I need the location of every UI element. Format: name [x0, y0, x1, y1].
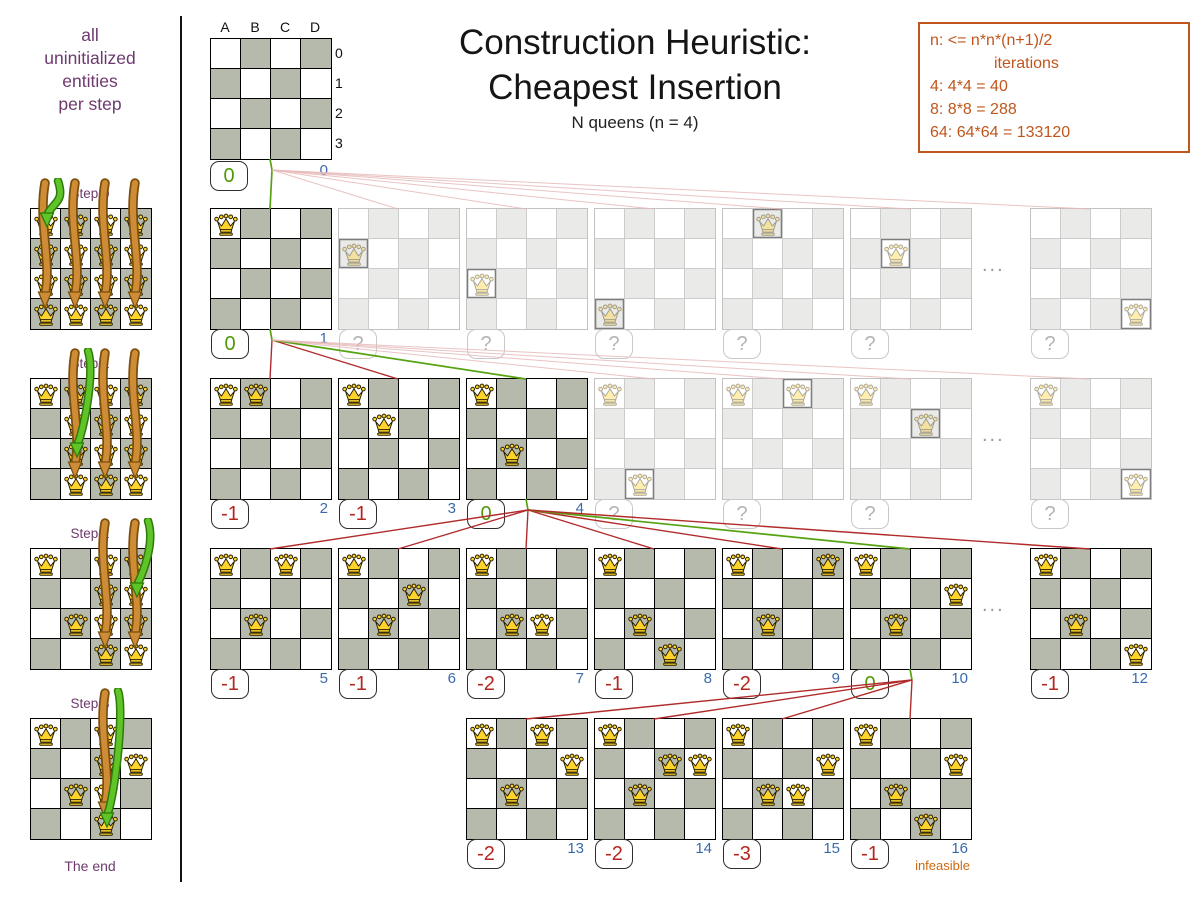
- the-end-label: The end: [8, 858, 172, 874]
- board-cell: [557, 549, 587, 579]
- board-cell: [1061, 639, 1091, 669]
- board-cell: [339, 239, 369, 269]
- board-cell: [655, 409, 685, 439]
- page-title: Construction Heuristic: Cheapest Inserti…: [392, 20, 878, 110]
- board-cell: [813, 439, 843, 469]
- queen-icon: [1033, 381, 1059, 407]
- board-cell: [723, 749, 753, 779]
- tree-board: [722, 208, 844, 330]
- board-cell: [467, 409, 497, 439]
- queen-icon: [123, 411, 149, 437]
- board-cell: [241, 299, 271, 329]
- board-cell: [31, 439, 61, 469]
- board-cell: [241, 379, 271, 409]
- board-cell: [527, 439, 557, 469]
- tree-board: [338, 548, 460, 670]
- board-cell: [369, 469, 399, 499]
- queen-icon: [93, 241, 119, 267]
- queen-icon: [725, 721, 751, 747]
- queen-icon: [401, 581, 427, 607]
- tree-board: [1030, 548, 1152, 670]
- board-cell: [941, 549, 971, 579]
- queen-icon: [943, 751, 969, 777]
- queen-icon: [63, 381, 89, 407]
- board-cell: [1031, 439, 1061, 469]
- board-cell: [685, 469, 715, 499]
- board-cell: [625, 639, 655, 669]
- board-cell: [753, 609, 783, 639]
- board-cell: [1031, 379, 1061, 409]
- queen-icon: [33, 241, 59, 267]
- board-cell: [271, 409, 301, 439]
- tree-board: [594, 718, 716, 840]
- board-cell: [911, 719, 941, 749]
- board-cell: [753, 579, 783, 609]
- board-cell: [271, 379, 301, 409]
- board-cell: [467, 469, 497, 499]
- iteration-number: 16: [850, 840, 968, 857]
- board-cell: [1061, 439, 1091, 469]
- queen-icon: [1123, 471, 1149, 497]
- step-label: Step 2: [30, 526, 150, 541]
- board-cell: [625, 239, 655, 269]
- queen-icon: [815, 751, 841, 777]
- board-cell: [881, 209, 911, 239]
- board-cell: [557, 719, 587, 749]
- board-cell: [1121, 209, 1151, 239]
- intro-line-4: per step: [6, 93, 174, 116]
- board-cell: [497, 609, 527, 639]
- board-cell: [527, 209, 557, 239]
- board-cell: [881, 269, 911, 299]
- board-cell: [1091, 379, 1121, 409]
- board-cell: [941, 469, 971, 499]
- queen-icon: [597, 551, 623, 577]
- score-badge: ?: [467, 329, 505, 359]
- board-cell: [399, 409, 429, 439]
- step-board: [30, 208, 152, 330]
- board-cell: [881, 239, 911, 269]
- board-cell: [467, 579, 497, 609]
- board-cell: [941, 579, 971, 609]
- board-cell: [941, 749, 971, 779]
- board-cell: [91, 609, 121, 639]
- board-cell: [31, 299, 61, 329]
- board-cell: [241, 209, 271, 239]
- board-cell: [911, 779, 941, 809]
- queen-icon: [93, 581, 119, 607]
- board-cell: [1121, 549, 1151, 579]
- board-cell: [851, 609, 881, 639]
- page-title-line1: Construction Heuristic:: [392, 20, 878, 65]
- board-cell: [339, 549, 369, 579]
- score-badge: ?: [851, 499, 889, 529]
- queen-icon: [657, 641, 683, 667]
- score-badge: ?: [723, 499, 761, 529]
- board-cell: [241, 129, 271, 159]
- board-cell: [91, 639, 121, 669]
- tree-board: [850, 208, 972, 330]
- board-cell: [813, 579, 843, 609]
- board-cell: [211, 379, 241, 409]
- queen-icon: [559, 751, 585, 777]
- board-cell: [1061, 609, 1091, 639]
- board-cell: [783, 209, 813, 239]
- board-cell: [851, 749, 881, 779]
- queen-icon: [341, 551, 367, 577]
- board-cell: [881, 749, 911, 779]
- board-cell: [941, 299, 971, 329]
- board-cell: [753, 239, 783, 269]
- board-cell: [467, 779, 497, 809]
- board-cell: [31, 609, 61, 639]
- column-letter: B: [240, 19, 270, 35]
- board-cell: [685, 549, 715, 579]
- board-cell: [339, 639, 369, 669]
- row-number: 0: [335, 45, 343, 61]
- queen-icon: [597, 301, 623, 327]
- board-cell: [1091, 579, 1121, 609]
- board-cell: [595, 719, 625, 749]
- intro-line-3: entities: [6, 70, 174, 93]
- board-cell: [429, 379, 459, 409]
- infeasible-label: infeasible: [842, 858, 970, 873]
- board-cell: [625, 209, 655, 239]
- board-cell: [813, 809, 843, 839]
- board-cell: [911, 439, 941, 469]
- board-cell: [911, 749, 941, 779]
- board-cell: [31, 209, 61, 239]
- board-cell: [685, 239, 715, 269]
- board-cell: [467, 269, 497, 299]
- board-cell: [369, 439, 399, 469]
- board-cell: [301, 609, 331, 639]
- board-cell: [301, 39, 331, 69]
- queen-icon: [123, 211, 149, 237]
- board-cell: [723, 439, 753, 469]
- queen-icon: [1063, 611, 1089, 637]
- queen-icon: [123, 381, 149, 407]
- board-cell: [557, 379, 587, 409]
- board-cell: [121, 209, 151, 239]
- board-cell: [301, 469, 331, 499]
- queen-icon: [123, 241, 149, 267]
- board-cell: [625, 579, 655, 609]
- board-cell: [121, 719, 151, 749]
- board-cell: [723, 579, 753, 609]
- board-cell: [813, 239, 843, 269]
- board-cell: [1121, 409, 1151, 439]
- board-cell: [911, 209, 941, 239]
- board-cell: [31, 379, 61, 409]
- board-cell: [467, 719, 497, 749]
- board-cell: [625, 269, 655, 299]
- board-cell: [941, 779, 971, 809]
- queen-icon: [341, 241, 367, 267]
- board-cell: [685, 719, 715, 749]
- ellipsis-label: ...: [982, 424, 1005, 447]
- board-cell: [881, 439, 911, 469]
- board-cell: [1031, 269, 1061, 299]
- board-cell: [595, 209, 625, 239]
- board-cell: [753, 809, 783, 839]
- queen-icon: [123, 581, 149, 607]
- board-cell: [61, 609, 91, 639]
- queen-icon: [943, 581, 969, 607]
- iteration-number: 1: [210, 330, 328, 347]
- board-cell: [783, 639, 813, 669]
- board-cell: [685, 749, 715, 779]
- tree-board: [466, 378, 588, 500]
- board-cell: [655, 269, 685, 299]
- board-cell: [241, 639, 271, 669]
- board-cell: [121, 239, 151, 269]
- queen-icon: [123, 471, 149, 497]
- board-cell: [851, 779, 881, 809]
- queen-icon: [93, 721, 119, 747]
- board-cell: [241, 69, 271, 99]
- board-cell: [211, 239, 241, 269]
- board-cell: [1061, 209, 1091, 239]
- board-cell: [467, 809, 497, 839]
- board-cell: [1091, 239, 1121, 269]
- board-cell: [723, 719, 753, 749]
- board-cell: [31, 409, 61, 439]
- board-cell: [91, 439, 121, 469]
- board-cell: [595, 239, 625, 269]
- board-cell: [369, 239, 399, 269]
- tree-board: [722, 378, 844, 500]
- iteration-number: 3: [338, 500, 456, 517]
- board-cell: [685, 579, 715, 609]
- queen-icon: [597, 381, 623, 407]
- queen-icon: [243, 381, 269, 407]
- tree-board: [850, 718, 972, 840]
- board-cell: [685, 609, 715, 639]
- queen-icon: [913, 411, 939, 437]
- queen-icon: [93, 781, 119, 807]
- board-cell: [851, 579, 881, 609]
- board-cell: [61, 439, 91, 469]
- queen-icon: [93, 811, 119, 837]
- board-cell: [813, 549, 843, 579]
- board-cell: [497, 469, 527, 499]
- board-cell: [813, 469, 843, 499]
- board-cell: [369, 639, 399, 669]
- tree-board: [594, 378, 716, 500]
- board-cell: [753, 299, 783, 329]
- board-cell: [211, 549, 241, 579]
- board-cell: [91, 809, 121, 839]
- board-cell: [497, 749, 527, 779]
- board-cell: [467, 379, 497, 409]
- tree-board: [1030, 208, 1152, 330]
- board-cell: [881, 299, 911, 329]
- board-cell: [881, 719, 911, 749]
- tree-board: [722, 548, 844, 670]
- iteration-number: 8: [594, 670, 712, 687]
- board-cell: [497, 809, 527, 839]
- board-cell: [851, 439, 881, 469]
- board-cell: [1091, 639, 1121, 669]
- queen-icon: [883, 781, 909, 807]
- board-cell: [31, 749, 61, 779]
- queen-icon: [93, 551, 119, 577]
- board-cell: [301, 639, 331, 669]
- board-cell: [211, 209, 241, 239]
- board-cell: [941, 209, 971, 239]
- info-line-n64: 64: 64*64 = 133120: [930, 121, 1178, 144]
- board-cell: [595, 549, 625, 579]
- board-cell: [685, 379, 715, 409]
- queen-icon: [1123, 641, 1149, 667]
- board-cell: [1031, 469, 1061, 499]
- board-cell: [595, 579, 625, 609]
- board-cell: [61, 549, 91, 579]
- connector-line: [272, 170, 1090, 209]
- tree-board: [466, 208, 588, 330]
- board-cell: [429, 269, 459, 299]
- board-cell: [557, 439, 587, 469]
- board-cell: [31, 579, 61, 609]
- board-cell: [91, 209, 121, 239]
- board-cell: [61, 379, 91, 409]
- board-cell: [685, 639, 715, 669]
- queen-icon: [853, 551, 879, 577]
- board-cell: [1061, 549, 1091, 579]
- board-cell: [271, 439, 301, 469]
- board-cell: [851, 239, 881, 269]
- queen-icon: [63, 241, 89, 267]
- queen-icon: [33, 381, 59, 407]
- board-cell: [783, 409, 813, 439]
- board-cell: [467, 749, 497, 779]
- board-cell: [911, 469, 941, 499]
- board-cell: [399, 639, 429, 669]
- board-cell: [429, 439, 459, 469]
- board-cell: [211, 269, 241, 299]
- board-cell: [61, 779, 91, 809]
- queen-icon: [627, 781, 653, 807]
- queen-icon: [273, 551, 299, 577]
- queen-icon: [529, 611, 555, 637]
- board-cell: [1121, 299, 1151, 329]
- board-cell: [851, 299, 881, 329]
- board-cell: [813, 639, 843, 669]
- board-cell: [241, 99, 271, 129]
- board-cell: [557, 579, 587, 609]
- board-cell: [881, 579, 911, 609]
- queen-icon: [785, 381, 811, 407]
- board-cell: [851, 809, 881, 839]
- queen-icon: [213, 211, 239, 237]
- board-cell: [783, 239, 813, 269]
- queen-icon: [63, 781, 89, 807]
- board-cell: [497, 639, 527, 669]
- board-cell: [271, 99, 301, 129]
- board-cell: [625, 409, 655, 439]
- page-title-line2: Cheapest Insertion: [392, 65, 878, 110]
- queen-icon: [371, 411, 397, 437]
- board-cell: [1031, 609, 1061, 639]
- ellipsis-label: ...: [982, 254, 1005, 277]
- board-cell: [655, 579, 685, 609]
- board-cell: [301, 299, 331, 329]
- board-cell: [557, 749, 587, 779]
- board-cell: [557, 809, 587, 839]
- board-cell: [121, 299, 151, 329]
- board-cell: [497, 579, 527, 609]
- board-cell: [301, 409, 331, 439]
- board-cell: [1061, 409, 1091, 439]
- board-cell: [753, 269, 783, 299]
- board-cell: [655, 379, 685, 409]
- queen-icon: [687, 751, 713, 777]
- iteration-number: 9: [722, 670, 840, 687]
- board-cell: [911, 639, 941, 669]
- board-cell: [467, 209, 497, 239]
- board-cell: [497, 269, 527, 299]
- tree-board: [338, 378, 460, 500]
- board-cell: [211, 69, 241, 99]
- step-board: [30, 718, 152, 840]
- board-cell: [625, 469, 655, 499]
- iteration-number: 15: [722, 840, 840, 857]
- board-cell: [497, 719, 527, 749]
- board-cell: [911, 299, 941, 329]
- board-cell: [1061, 379, 1091, 409]
- board-cell: [527, 239, 557, 269]
- iteration-number: 4: [466, 500, 584, 517]
- queen-icon: [93, 381, 119, 407]
- board-cell: [941, 719, 971, 749]
- board-cell: [61, 809, 91, 839]
- board-cell: [527, 549, 557, 579]
- board-cell: [497, 209, 527, 239]
- step-board: [30, 548, 152, 670]
- board-cell: [557, 209, 587, 239]
- board-cell: [851, 719, 881, 749]
- board-cell: [211, 609, 241, 639]
- board-cell: [1091, 469, 1121, 499]
- board-cell: [655, 749, 685, 779]
- queen-icon: [243, 611, 269, 637]
- board-cell: [301, 439, 331, 469]
- board-cell: [301, 379, 331, 409]
- board-cell: [301, 269, 331, 299]
- board-cell: [211, 439, 241, 469]
- board-cell: [31, 639, 61, 669]
- board-cell: [339, 379, 369, 409]
- board-cell: [211, 409, 241, 439]
- score-badge: ?: [339, 329, 377, 359]
- board-cell: [497, 439, 527, 469]
- queen-icon: [725, 381, 751, 407]
- board-cell: [399, 439, 429, 469]
- board-cell: [429, 299, 459, 329]
- board-cell: [595, 779, 625, 809]
- separator-line: [180, 16, 182, 882]
- board-cell: [527, 379, 557, 409]
- connector-line: [272, 170, 910, 209]
- board-cell: [753, 409, 783, 439]
- queen-icon: [213, 381, 239, 407]
- sidebar-intro: all uninitialized entities per step: [6, 24, 174, 116]
- board-cell: [429, 209, 459, 239]
- board-cell: [557, 299, 587, 329]
- board-cell: [31, 269, 61, 299]
- queen-icon: [63, 611, 89, 637]
